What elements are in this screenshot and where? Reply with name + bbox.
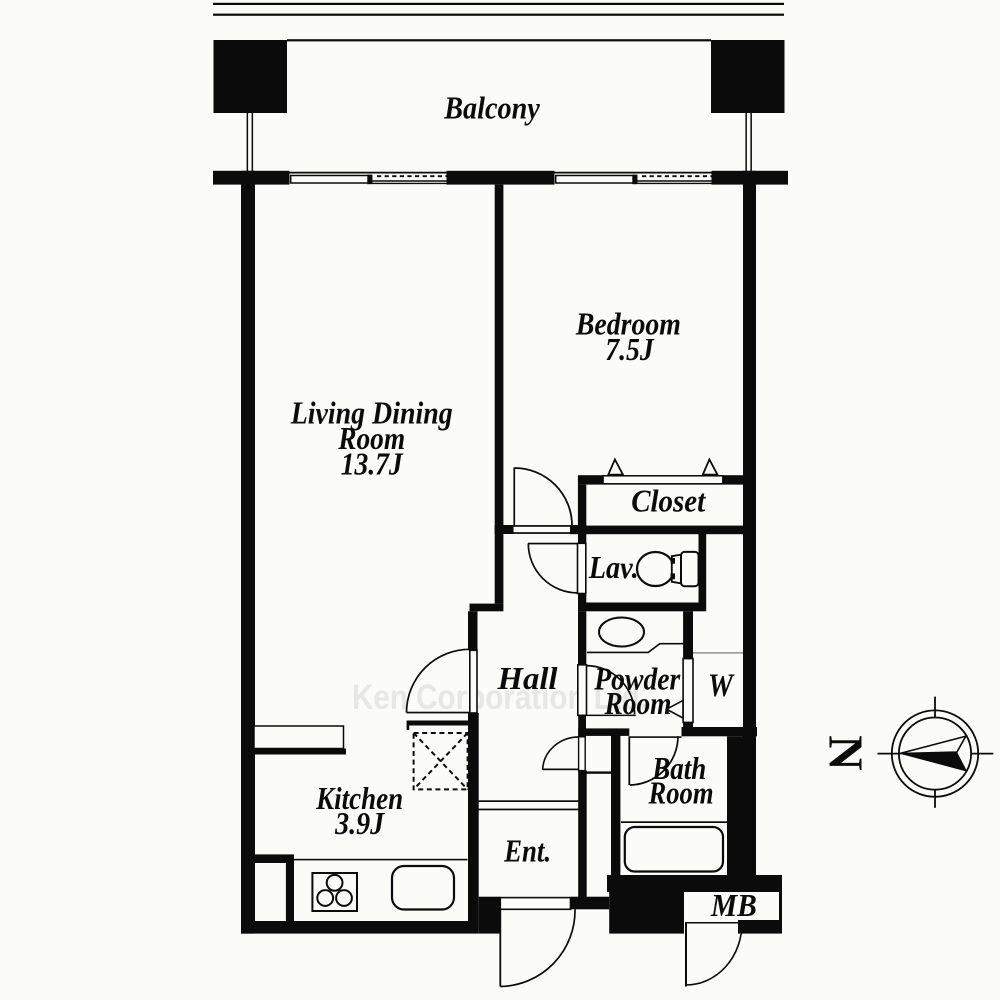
svg-text:W: W [708, 668, 735, 704]
svg-text:13.7J: 13.7J [341, 445, 404, 481]
svg-text:Lav.: Lav. [588, 549, 639, 585]
svg-text:Room: Room [648, 774, 714, 810]
svg-text:Closet: Closet [631, 483, 706, 519]
svg-text:Hall: Hall [496, 660, 557, 696]
svg-text:3.9J: 3.9J [334, 805, 385, 841]
svg-text:Ent.: Ent. [503, 832, 551, 868]
svg-text:N: N [819, 735, 874, 770]
svg-text:Balcony: Balcony [443, 90, 540, 126]
svg-text:MB: MB [710, 887, 757, 923]
svg-text:7.5J: 7.5J [605, 331, 654, 367]
